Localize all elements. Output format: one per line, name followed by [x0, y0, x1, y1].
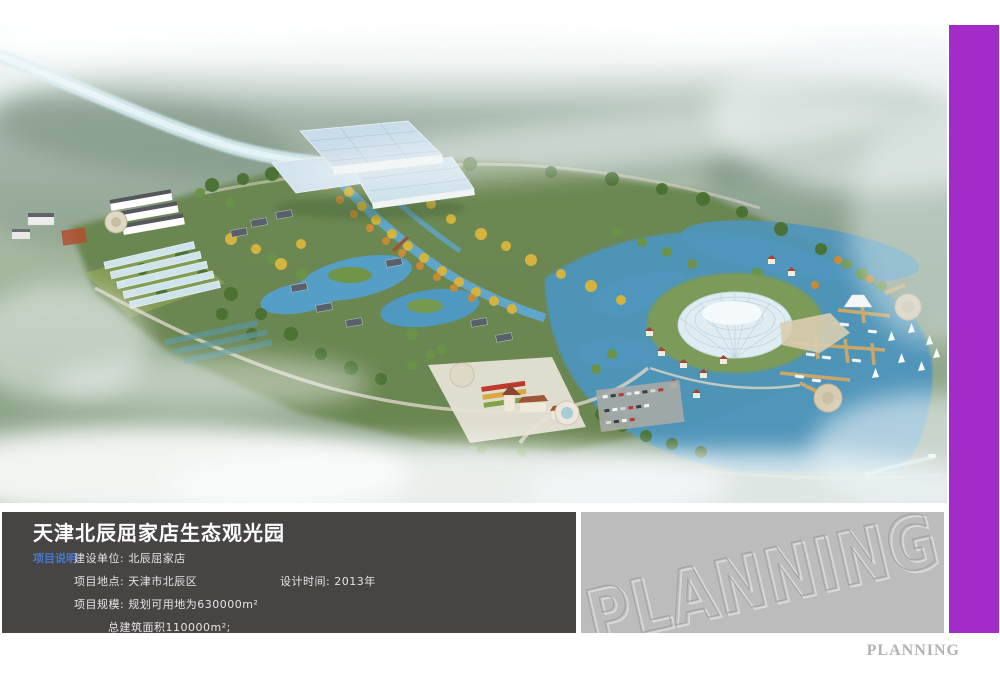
project-title: 天津北辰屈家店生态观光园 [33, 517, 285, 546]
field-design-time: 设计时间: 2013年 [280, 573, 376, 589]
project-info-panel: 天津北辰屈家店生态观光园 项目说明 建设单位: 北辰屈家店 项目地点: 天津市北… [2, 512, 576, 633]
field-total-floor-area: 总建筑面积110000m²; [108, 619, 231, 635]
watermark-text: PLANNING [581, 512, 944, 633]
planning-board-page: 天津北辰屈家店生态观光园 项目说明 建设单位: 北辰屈家店 项目地点: 天津市北… [0, 0, 1000, 678]
aerial-rendering-image [0, 23, 947, 503]
field-project-scale: 项目规模: 规划可用地为630000m² [74, 596, 258, 612]
watermark-panel: PLANNING PLANNING [581, 512, 944, 633]
footer-brand-planning: PLANNING [860, 642, 960, 660]
field-construction-unit: 建设单位: 北辰屈家店 [74, 550, 186, 566]
purple-accent-bar [949, 25, 999, 633]
embossed-watermark: PLANNING PLANNING [581, 512, 944, 633]
field-project-location: 项目地点: 天津市北辰区 [74, 573, 197, 589]
aerial-park-illustration [0, 23, 947, 503]
section-label-project-description: 项目说明 [33, 550, 77, 566]
